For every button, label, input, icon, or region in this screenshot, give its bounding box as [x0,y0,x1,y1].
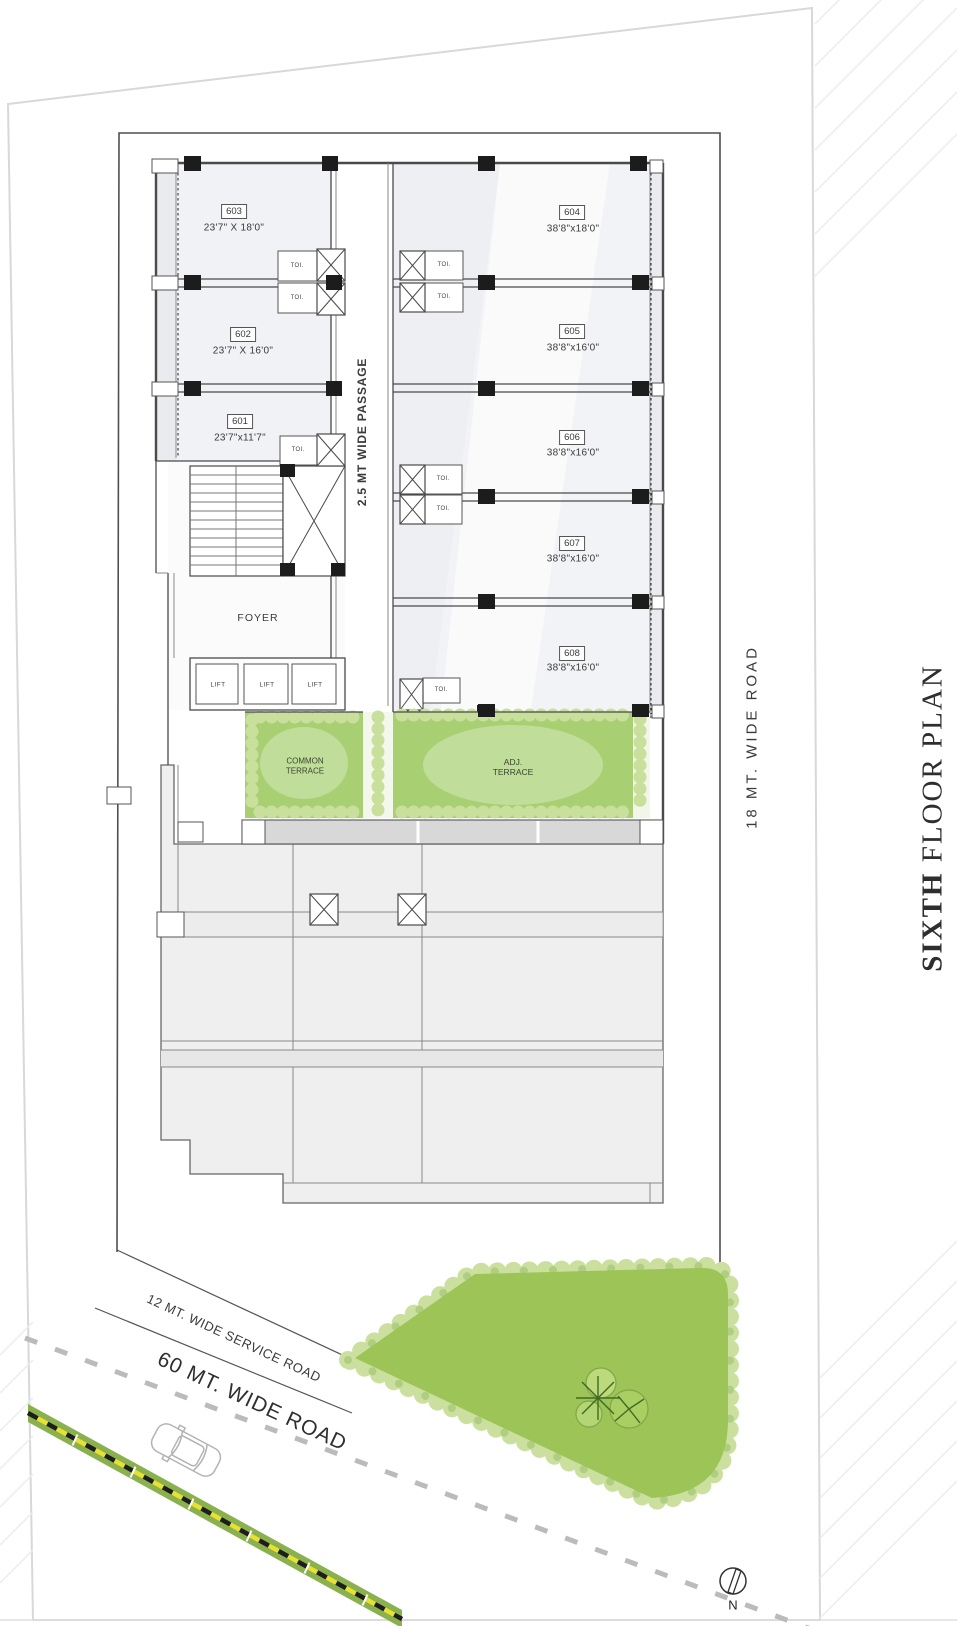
room-603-dims: 23'7" X 18'0" [204,223,264,234]
room-604-number: 604 [559,202,585,220]
room-602-dims: 23'7" X 16'0" [213,346,273,357]
room-608-dims: 38'8"x16'0" [547,663,600,674]
room-605-dims: 38'8"x16'0" [547,343,600,354]
north-arrow-icon [720,1568,746,1594]
toilet-label: TOI. [438,262,451,268]
north-label: N [728,1598,737,1613]
room-601-dims: 23'7"x11'7" [214,433,266,444]
room-number-box: 608 [559,646,585,661]
lift-label: LIFT [308,682,323,689]
garden [348,1266,730,1501]
duct-shaft-icon [283,466,345,576]
room-601-number: 601 [227,411,253,429]
toilet-label: TOI. [291,263,304,269]
toilet-label: TOI. [292,447,305,453]
room-607-dims: 38'8"x16'0" [547,554,600,565]
room-606-number: 606 [559,427,585,445]
room-number-box: 606 [559,430,585,445]
toilet-label: TOI. [437,506,450,512]
adj-terrace-label: ADJ. TERRACE [485,757,541,777]
room-604-dims: 38'8"x18'0" [547,224,600,235]
room-606-dims: 38'8"x16'0" [547,448,600,459]
stairs-icon [190,466,283,576]
hatch-bottom-right [820,1241,957,1618]
hatch-top-right [815,0,957,276]
room-607-number: 607 [559,533,585,551]
lift-label: LIFT [211,682,226,689]
room-number-box: 603 [221,204,247,219]
room-number-box: 601 [227,414,253,429]
toilet-label: TOI. [438,294,451,300]
room-number-box: 607 [559,536,585,551]
room-602-number: 602 [230,324,256,342]
floor-plan-drawing [0,0,957,1626]
toilet-label: TOI. [437,476,450,482]
room-603-number: 603 [221,201,247,219]
floor-plan: SIXTH FLOOR PLAN 18 MT. WIDE ROAD 2.5 MT… [0,0,957,1626]
lift-label: LIFT [260,682,275,689]
foyer-label: FOYER [237,612,278,624]
room-number-box: 602 [230,327,256,342]
road-label-right: 18 MT. WIDE ROAD [744,645,761,829]
passage-label: 2.5 MT WIDE PASSAGE [355,358,369,506]
page-title-bold: SIXTH [917,872,949,972]
room-number-box: 604 [559,205,585,220]
room-608-number: 608 [559,643,585,661]
room-605-number: 605 [559,321,585,339]
common-terrace-label: COMMON TERRACE [275,756,335,775]
toilet-label: TOI. [291,295,304,301]
page-title-regular: FLOOR PLAN [917,664,949,862]
room-number-box: 605 [559,324,585,339]
toilet-label: TOI. [435,687,448,693]
car-icon [146,1417,226,1483]
page-title: SIXTH FLOOR PLAN [917,664,950,972]
